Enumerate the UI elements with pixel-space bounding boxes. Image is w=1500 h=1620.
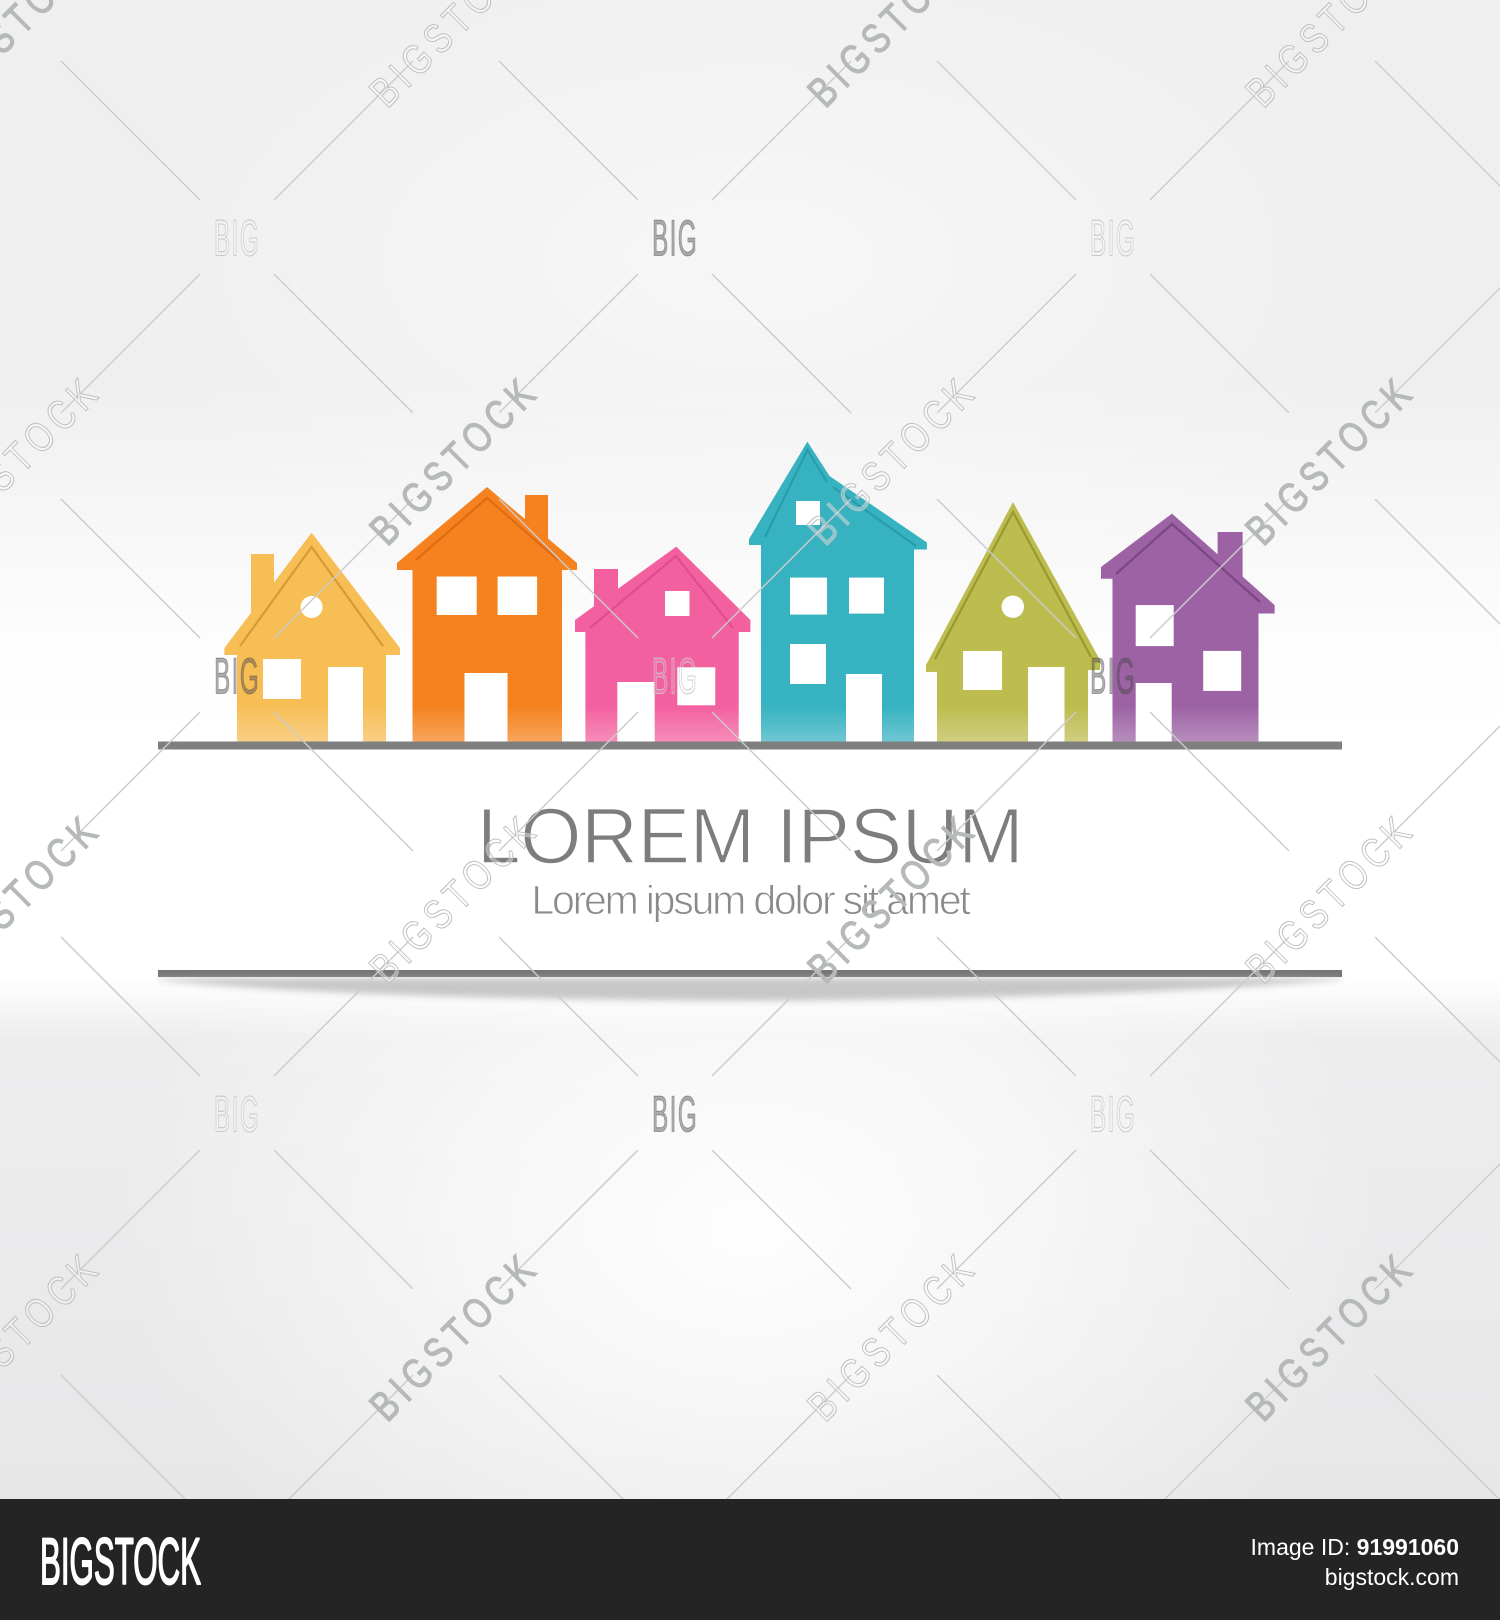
svg-text:BIGSTOCK: BIGSTOCK bbox=[798, 366, 986, 554]
svg-text:BIGSTOCK: BIGSTOCK bbox=[0, 1242, 110, 1430]
svg-text:BIGSTOCK: BIGSTOCK bbox=[0, 0, 110, 116]
svg-text:BIG: BIG bbox=[214, 649, 260, 705]
svg-text:BIGSTOCK: BIGSTOCK bbox=[798, 0, 986, 116]
svg-text:BIG: BIG bbox=[652, 1087, 698, 1143]
svg-text:BIG: BIG bbox=[652, 211, 698, 267]
svg-text:BIG: BIG bbox=[214, 1087, 260, 1143]
svg-text:BIGSTOCK: BIGSTOCK bbox=[0, 804, 110, 992]
svg-text:BIGSTOCK: BIGSTOCK bbox=[360, 1242, 548, 1430]
svg-text:BIGSTOCK: BIGSTOCK bbox=[360, 366, 548, 554]
svg-text:BIG: BIG bbox=[1090, 211, 1136, 267]
svg-text:BIGSTOCK: BIGSTOCK bbox=[798, 804, 986, 992]
svg-text:BIG: BIG bbox=[652, 649, 698, 705]
svg-text:BIG: BIG bbox=[214, 211, 260, 267]
svg-text:BIGSTOCK: BIGSTOCK bbox=[1236, 1242, 1424, 1430]
svg-text:BIG: BIG bbox=[1090, 1087, 1136, 1143]
svg-text:BIGSTOCK: BIGSTOCK bbox=[1236, 366, 1424, 554]
svg-text:BIGSTOCK: BIGSTOCK bbox=[798, 1242, 986, 1430]
svg-text:BIGSTOCK: BIGSTOCK bbox=[360, 804, 548, 992]
svg-text:BIGSTOCK: BIGSTOCK bbox=[360, 0, 548, 116]
svg-text:BIG: BIG bbox=[1090, 649, 1136, 705]
svg-text:BIGSTOCK: BIGSTOCK bbox=[0, 366, 110, 554]
svg-text:BIGSTOCK: BIGSTOCK bbox=[1236, 0, 1424, 116]
svg-text:BIGSTOCK: BIGSTOCK bbox=[1236, 804, 1424, 992]
